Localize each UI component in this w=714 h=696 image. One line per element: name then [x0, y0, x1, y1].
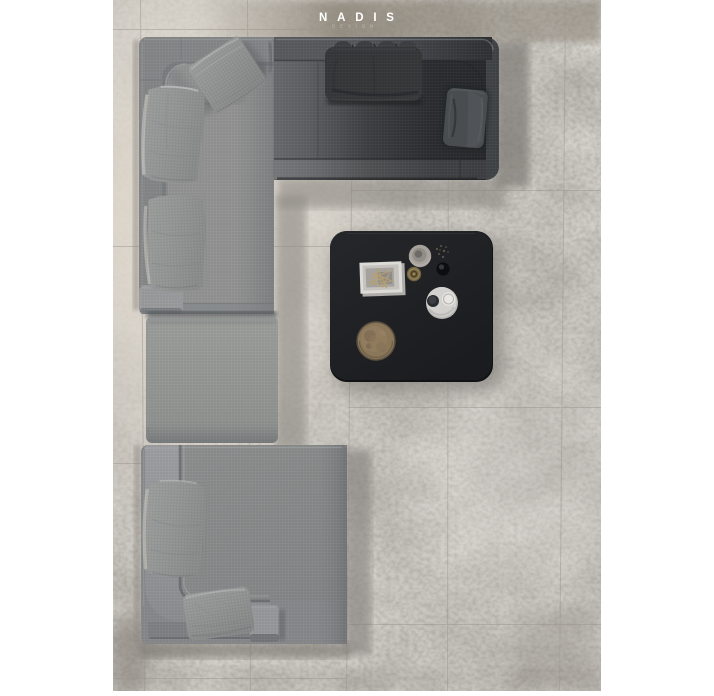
- svg-text:NADIS: NADIS: [319, 12, 404, 24]
- svg-text:DESIGN: DESIGN: [332, 24, 378, 29]
